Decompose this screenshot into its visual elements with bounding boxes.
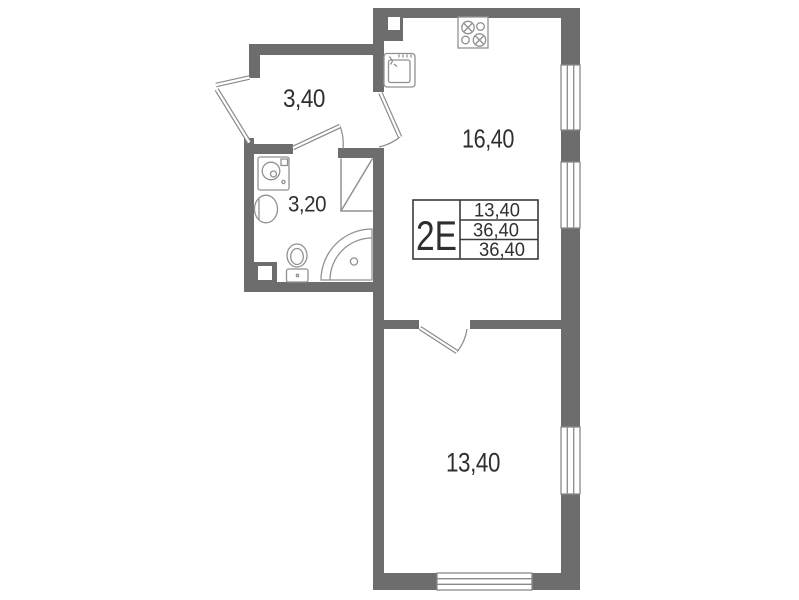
wall-segment — [532, 573, 580, 590]
wall-segment — [373, 148, 384, 590]
utility-shaft-icon — [341, 159, 373, 212]
room-labels: 3,40 3,20 16,40 13,40 — [283, 85, 514, 478]
wall-segment — [383, 320, 419, 329]
wall-segment — [244, 144, 293, 154]
shower-icon — [321, 229, 372, 280]
bedroom-area-label: 13,40 — [446, 448, 500, 478]
duct-opening — [258, 266, 272, 280]
table-row-value: 36,40 — [473, 221, 519, 242]
duct-opening — [388, 17, 400, 30]
wall-segment — [250, 44, 384, 55]
stove-icon — [458, 17, 488, 48]
table-row-value: 36,40 — [479, 240, 525, 261]
wall-segment — [373, 573, 437, 590]
unit-info-table: 2E 13,40 36,40 36,40 — [413, 200, 538, 261]
kitchen-door — [379, 93, 400, 147]
window — [437, 573, 532, 590]
window — [561, 427, 580, 494]
bathroom-door — [293, 126, 343, 149]
wall-segment — [561, 130, 580, 162]
window — [561, 65, 580, 130]
kitchen-sink-icon — [384, 54, 415, 88]
entrance-door — [216, 78, 250, 143]
floor-plan: 3,40 3,20 16,40 13,40 2E 13,40 36,40 36,… — [0, 0, 799, 600]
wall-segment — [338, 148, 383, 158]
wash-basin-icon — [255, 195, 278, 223]
table-row-value: 13,40 — [474, 201, 520, 222]
wall-segment — [561, 8, 580, 65]
bedroom-door — [420, 328, 467, 352]
wall-segment — [561, 228, 580, 427]
window — [561, 162, 580, 228]
wall-segment — [244, 282, 383, 292]
unit-code: 2E — [416, 212, 457, 259]
wall-segment — [561, 494, 580, 573]
wall-segment — [249, 44, 260, 78]
washing-machine-icon — [258, 157, 289, 190]
wall-segment — [244, 138, 254, 292]
kitchen-living-area-label: 16,40 — [462, 124, 514, 154]
toilet-icon — [287, 244, 309, 282]
hallway-area-label: 3,40 — [283, 85, 325, 113]
wall-segment — [470, 320, 561, 329]
bathroom-area-label: 3,20 — [288, 192, 326, 217]
floor-plan-canvas: 3,40 3,20 16,40 13,40 2E 13,40 36,40 36,… — [0, 0, 799, 600]
